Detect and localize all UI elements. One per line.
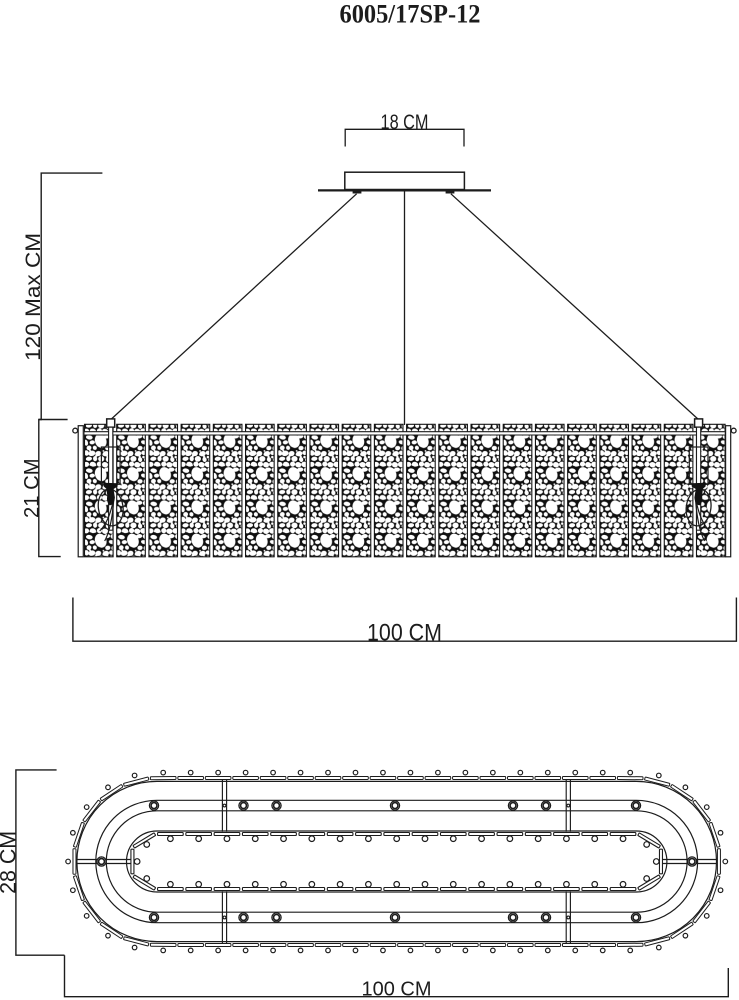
svg-text:28 CM: 28 CM xyxy=(0,831,21,894)
svg-text:6005/17SP-12: 6005/17SP-12 xyxy=(340,0,481,28)
svg-text:100 CM: 100 CM xyxy=(367,620,442,647)
svg-text:100 CM: 100 CM xyxy=(362,979,432,1000)
svg-text:120 Max CM: 120 Max CM xyxy=(22,233,45,361)
svg-text:21 CM: 21 CM xyxy=(20,458,43,518)
svg-text:18 CM: 18 CM xyxy=(381,111,429,134)
